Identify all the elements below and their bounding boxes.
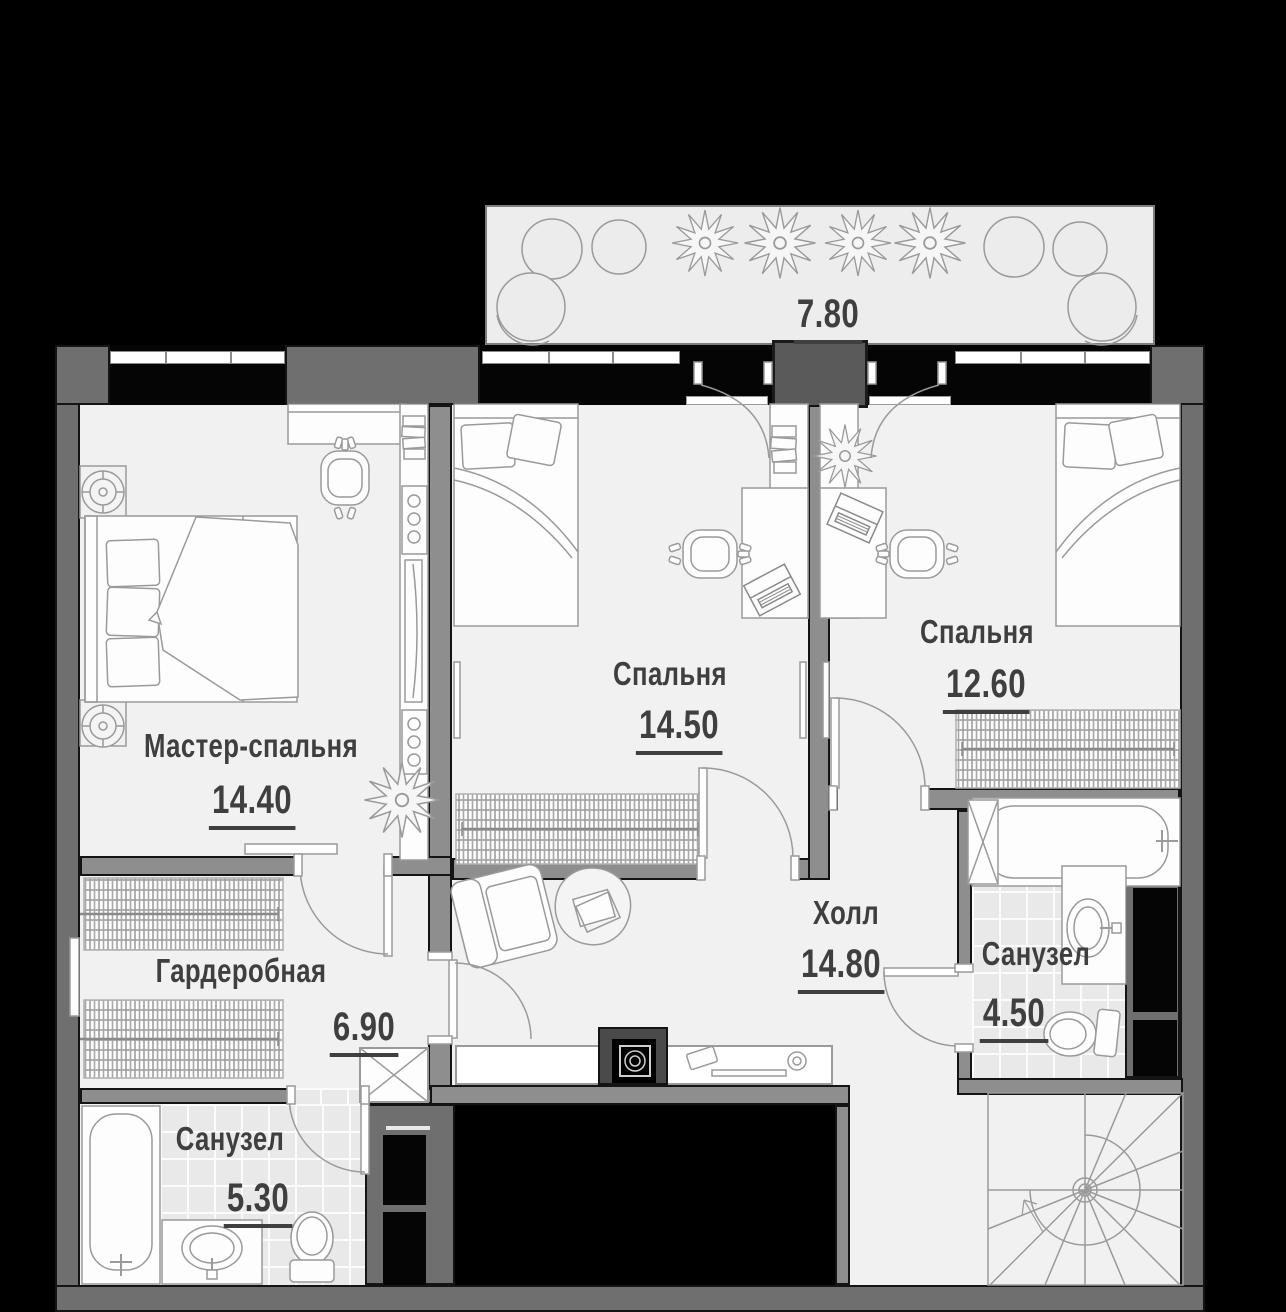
floor-plan: 7.80 Мастер-спальня 14.40 Спальня 14.50 … <box>0 0 1286 1312</box>
bedroom-right-area-label: 12.60 <box>931 662 1042 714</box>
drain-icon <box>620 1046 650 1076</box>
pouf-icon <box>592 220 646 274</box>
wardrobe-rail-icon <box>80 878 283 950</box>
hall-furniture <box>449 862 806 1076</box>
radiator-icon <box>800 662 806 738</box>
plant-icon <box>825 210 891 276</box>
door-swing-icon <box>694 362 772 458</box>
master-bedroom-name-label: Мастер-спальня <box>114 727 388 765</box>
armchair-icon <box>449 862 560 970</box>
plant-icon <box>745 208 816 279</box>
door-swing-icon <box>884 964 973 1052</box>
single-bed-icon <box>1056 404 1180 626</box>
single-bed-icon <box>454 404 578 626</box>
bedroom-middle-furniture <box>454 404 808 864</box>
desk-icon <box>288 404 406 444</box>
radiator-icon <box>823 662 829 738</box>
shelf-icon <box>245 844 337 854</box>
door-swing-icon <box>294 854 392 956</box>
sink-icon <box>162 1220 262 1284</box>
bathroom-left-area-label: 5.30 <box>214 1176 302 1228</box>
shower-cabinet-icon <box>968 800 998 884</box>
pouf-icon <box>1053 222 1107 276</box>
bathtub-icon <box>82 1106 160 1284</box>
hall-area-label: 14.80 <box>786 942 897 994</box>
wardrobe-rail-icon <box>456 794 703 864</box>
bedroom-middle-name-label: Спальня <box>597 655 743 693</box>
balcony-area-label: 7.80 <box>784 292 872 344</box>
office-chair-icon <box>669 530 752 578</box>
office-chair-icon <box>876 530 959 578</box>
mirror-icon <box>70 938 79 1016</box>
wardrobe-area-label: 6.90 <box>320 1005 408 1057</box>
plant-icon <box>672 210 738 276</box>
bathroom-left-name-label: Санузел <box>160 1120 299 1158</box>
console-items <box>686 1046 806 1076</box>
bedroom-middle-area-label: 14.50 <box>624 703 735 755</box>
wardrobe-furniture <box>70 878 428 1102</box>
spiral-stairs-icon <box>988 1093 1183 1285</box>
radiator-icon <box>454 662 460 738</box>
bathroom-right-name-label: Санузел <box>966 935 1105 973</box>
double-bed-icon <box>85 516 298 702</box>
pouf-icon <box>984 217 1044 277</box>
door-swing-icon <box>868 362 946 458</box>
plant-icon <box>895 208 966 279</box>
side-table-icon <box>555 868 630 945</box>
bedroom-right-furniture <box>814 404 1181 788</box>
hall-name-label: Холл <box>804 894 889 932</box>
bathroom-right-area-label: 4.50 <box>970 991 1058 1043</box>
wardrobe-name-label: Гардеробная <box>131 952 350 990</box>
wardrobe-rail-icon <box>956 710 1180 788</box>
floor-lamp-icon <box>82 471 124 513</box>
bedroom-right-name-label: Спальня <box>904 613 1050 651</box>
wardrobe-rail-icon <box>80 1000 283 1078</box>
office-chair-icon <box>321 437 369 520</box>
door-swing-icon <box>829 698 929 810</box>
master-bedroom-area-label: 14.40 <box>197 778 308 830</box>
pouf-icon <box>497 273 565 345</box>
pouf-icon <box>522 219 582 279</box>
door-swing-icon <box>697 768 799 880</box>
pouf-icon <box>1068 273 1137 345</box>
